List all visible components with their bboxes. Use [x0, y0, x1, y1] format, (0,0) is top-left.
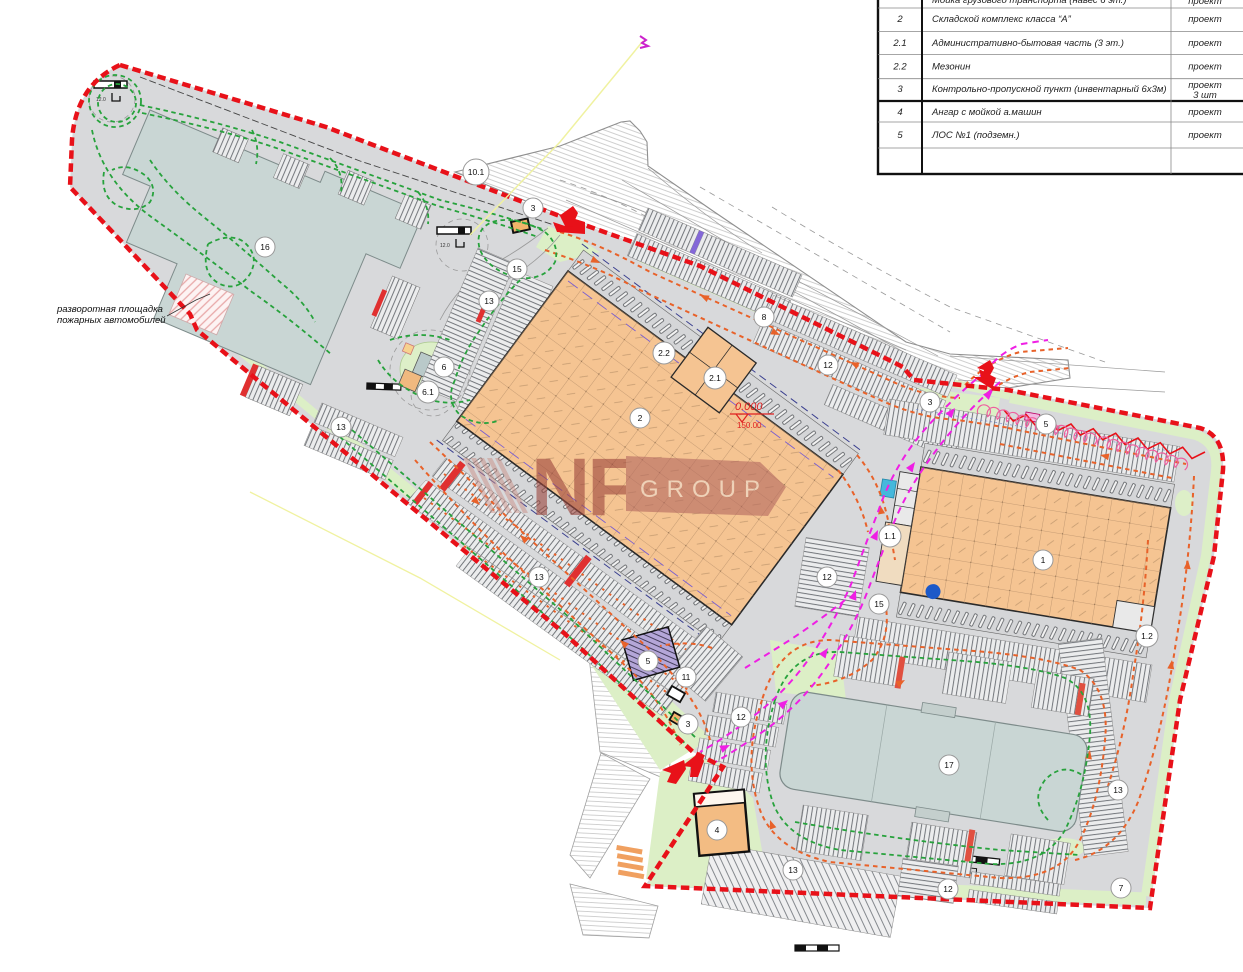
svg-text:проект: проект: [1188, 14, 1222, 25]
svg-text:15: 15: [512, 264, 522, 274]
svg-text:проект: проект: [1188, 130, 1222, 141]
svg-text:2.2: 2.2: [892, 62, 907, 73]
svg-text:8: 8: [762, 312, 767, 322]
svg-text:3: 3: [686, 719, 691, 729]
svg-text:15: 15: [874, 599, 884, 609]
svg-text:2: 2: [896, 14, 903, 25]
svg-text:7: 7: [1119, 883, 1124, 893]
svg-text:3: 3: [531, 203, 536, 213]
svg-text:1.2: 1.2: [1141, 631, 1153, 641]
svg-text:5: 5: [646, 656, 651, 666]
svg-text:12: 12: [823, 360, 833, 370]
svg-text:2.1: 2.1: [892, 38, 906, 49]
svg-text:17: 17: [944, 760, 954, 770]
svg-text:13: 13: [1113, 785, 1123, 795]
svg-text:Контрольно-пропускной пункт (и: Контрольно-пропускной пункт (инвентарный…: [932, 84, 1167, 95]
svg-text:11: 11: [682, 672, 691, 682]
svg-text:проект: проект: [1188, 107, 1222, 118]
svg-text:разворотная площадка: разворотная площадка: [56, 304, 163, 315]
svg-text:GROUP: GROUP: [640, 476, 768, 503]
svg-text:NF: NF: [531, 442, 635, 533]
svg-text:проект: проект: [1188, 62, 1222, 73]
svg-text:Мезонин: Мезонин: [932, 62, 971, 73]
svg-text:12: 12: [822, 572, 832, 582]
svg-text:6: 6: [442, 362, 447, 372]
svg-text:5: 5: [897, 130, 903, 141]
svg-text:6.1: 6.1: [422, 387, 434, 397]
svg-text:0.000: 0.000: [735, 401, 763, 413]
svg-text:13: 13: [336, 422, 346, 432]
svg-text:4: 4: [715, 825, 720, 835]
svg-text:проект: проект: [1188, 0, 1222, 7]
svg-text:проект: проект: [1188, 38, 1222, 49]
svg-text:Мойка грузового транспорта (на: Мойка грузового транспорта (навес 6 эт.): [932, 0, 1127, 6]
svg-text:13: 13: [484, 296, 494, 306]
svg-text:3: 3: [897, 84, 903, 95]
svg-text:Складской комплекс класса “А”: Складской комплекс класса “А”: [932, 14, 1072, 25]
svg-text:13: 13: [534, 572, 544, 582]
svg-text:13: 13: [788, 865, 798, 875]
svg-text:2.1: 2.1: [709, 373, 721, 383]
svg-text:Административно-бытовая часть: Административно-бытовая часть (3 эт.): [931, 38, 1124, 49]
svg-text:16: 16: [260, 242, 270, 252]
svg-text:2: 2: [638, 413, 643, 423]
svg-text:12: 12: [943, 884, 953, 894]
svg-text:Ангар с мойкой а.машин: Ангар с мойкой а.машин: [931, 107, 1042, 118]
svg-text:12: 12: [736, 712, 746, 722]
svg-text:12.0: 12.0: [440, 243, 450, 249]
svg-text:3 шт: 3 шт: [1193, 90, 1217, 101]
svg-text:3: 3: [928, 397, 933, 407]
svg-text:2.2: 2.2: [658, 348, 670, 358]
svg-text:10.1: 10.1: [468, 167, 485, 177]
svg-text:ЛОС №1 (подземн.): ЛОС №1 (подземн.): [931, 130, 1020, 141]
svg-text:1: 1: [1041, 555, 1046, 565]
svg-text:пожарных автомобилей: пожарных автомобилей: [57, 315, 166, 326]
svg-text:4: 4: [897, 107, 902, 118]
svg-text:5: 5: [1044, 419, 1049, 429]
svg-text:150.00: 150.00: [737, 421, 762, 430]
svg-text:1.1: 1.1: [884, 531, 896, 541]
